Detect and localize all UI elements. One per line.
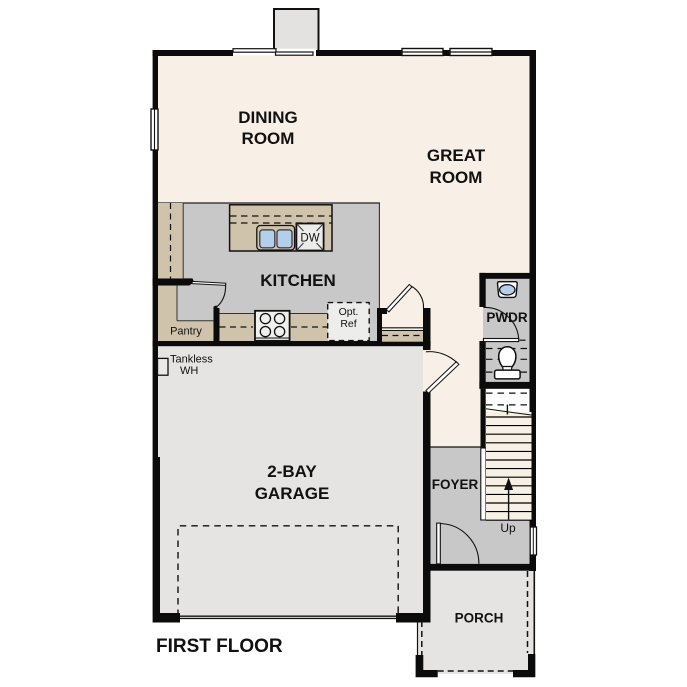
svg-text:ROOM: ROOM [430, 168, 483, 187]
svg-text:KITCHEN: KITCHEN [260, 271, 336, 290]
svg-text:WH: WH [180, 365, 198, 377]
svg-text:GARAGE: GARAGE [255, 484, 330, 503]
svg-text:Tankless: Tankless [170, 354, 213, 366]
svg-text:ROOM: ROOM [242, 129, 295, 148]
svg-text:PWDR: PWDR [486, 310, 527, 325]
svg-text:Ref: Ref [340, 318, 356, 330]
svg-text:Opt.: Opt. [339, 306, 359, 318]
svg-text:Up: Up [500, 521, 516, 535]
svg-text:DW: DW [300, 233, 319, 245]
svg-text:FOYER: FOYER [432, 477, 479, 492]
svg-text:2-BAY: 2-BAY [267, 462, 317, 481]
svg-text:FIRST FLOOR: FIRST FLOOR [156, 636, 283, 657]
svg-text:DINING: DINING [238, 108, 298, 127]
svg-text:PORCH: PORCH [455, 611, 504, 626]
svg-text:GREAT: GREAT [427, 146, 486, 165]
svg-text:Pantry: Pantry [170, 326, 202, 338]
